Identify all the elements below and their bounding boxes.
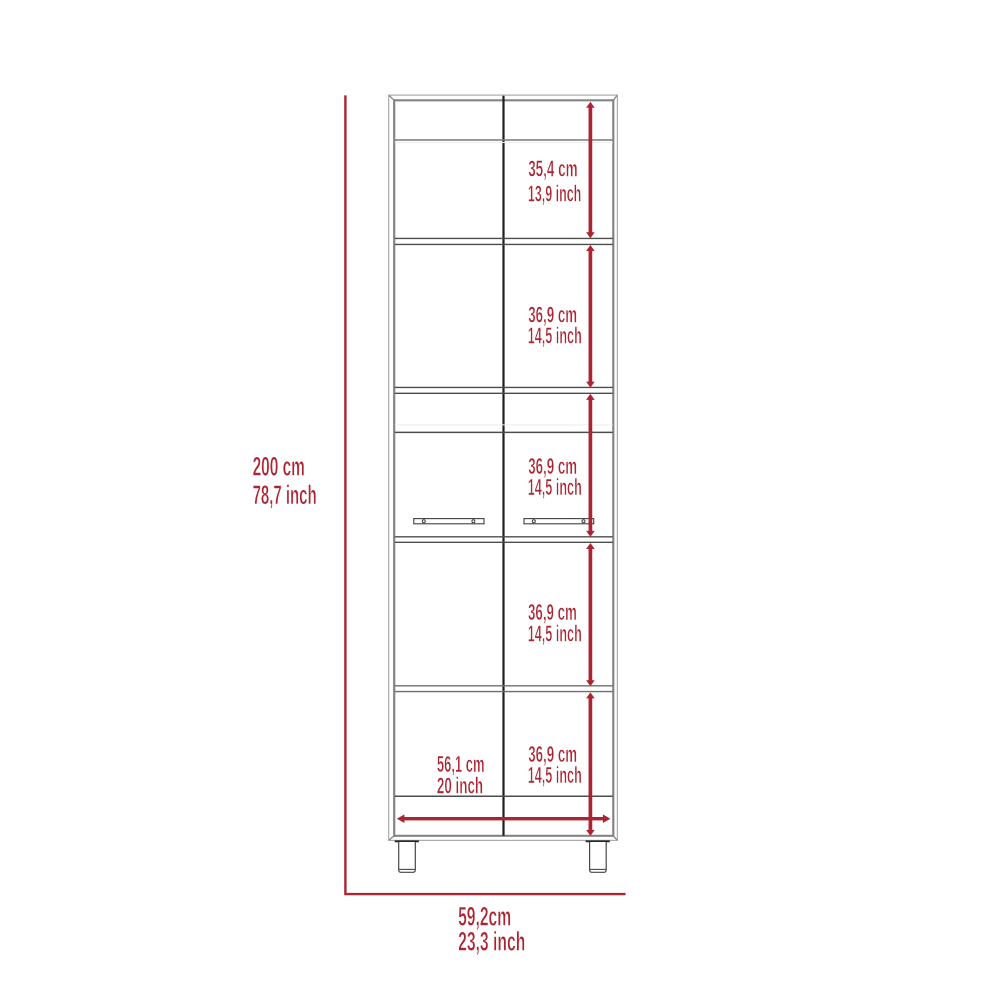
svg-text:14,5 inch: 14,5 inch	[528, 621, 582, 647]
svg-text:23,3 inch: 23,3 inch	[458, 926, 525, 956]
svg-text:78,7 inch: 78,7 inch	[253, 480, 317, 510]
svg-text:14,5 inch: 14,5 inch	[528, 323, 582, 349]
svg-text:20 inch: 20 inch	[437, 773, 483, 799]
svg-text:13,9 inch: 13,9 inch	[528, 181, 581, 207]
svg-text:14,5 inch: 14,5 inch	[528, 762, 582, 788]
svg-text:14,5 inch: 14,5 inch	[528, 474, 582, 500]
svg-text:200 cm: 200 cm	[253, 452, 305, 482]
svg-text:35,4 cm: 35,4 cm	[528, 156, 577, 182]
